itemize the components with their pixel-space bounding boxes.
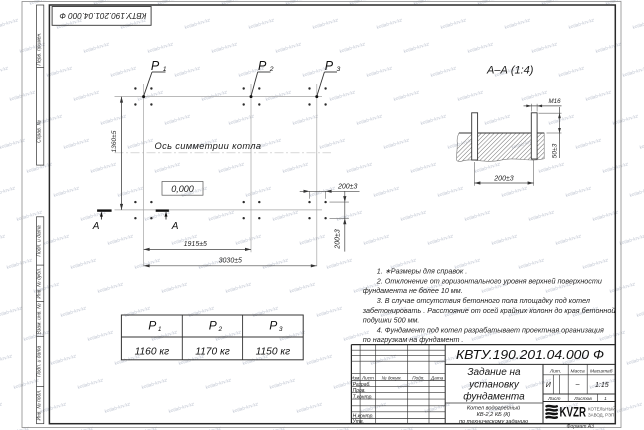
svg-text:2. Отклонение от горизонтал: 2. Отклонение от горизонтального уровня … bbox=[376, 276, 602, 285]
svg-text:1915±5: 1915±5 bbox=[184, 241, 207, 248]
svg-text:Изм.: Изм. bbox=[351, 376, 361, 381]
svg-text:Утв.: Утв. bbox=[353, 419, 364, 425]
svg-text:А–А (1:4): А–А (1:4) bbox=[486, 64, 534, 76]
svg-text:3030±5: 3030±5 bbox=[219, 257, 242, 264]
svg-text:–: – bbox=[575, 381, 580, 388]
svg-text:3: 3 bbox=[337, 66, 341, 73]
svg-text:Лит.: Лит. bbox=[549, 368, 561, 374]
svg-text:Подп.: Подп. bbox=[412, 376, 424, 381]
svg-text:2: 2 bbox=[269, 66, 274, 73]
svg-text:КВТУ.190.201.04.000 Ф: КВТУ.190.201.04.000 Ф bbox=[59, 11, 146, 20]
svg-text:1: 1 bbox=[604, 396, 607, 402]
svg-text:КОТЕЛЬНЫЙ: КОТЕЛЬНЫЙ bbox=[588, 406, 616, 411]
svg-text:P: P bbox=[325, 59, 334, 73]
svg-text:Листов: Листов bbox=[573, 396, 592, 402]
svg-text:подушки 500 мм.: подушки 500 мм. bbox=[363, 316, 420, 325]
svg-text:P: P bbox=[148, 319, 156, 333]
svg-text:1150 кг: 1150 кг bbox=[256, 346, 291, 357]
svg-text:по техническому заданию: по техническому заданию bbox=[459, 419, 529, 425]
svg-text:200±3: 200±3 bbox=[335, 229, 342, 250]
svg-text:установку: установку bbox=[468, 379, 520, 390]
svg-text:фундамента не более 10 мм.: фундамента не более 10 мм. bbox=[363, 286, 463, 295]
svg-text:Пров.: Пров. bbox=[353, 388, 366, 394]
svg-text:Инв. № подл.: Инв. № подл. bbox=[36, 389, 42, 420]
svg-text:P: P bbox=[269, 319, 277, 333]
svg-text:Лист: Лист bbox=[361, 376, 374, 381]
svg-text:0,000: 0,000 bbox=[171, 184, 194, 194]
svg-text:Масштаб: Масштаб bbox=[590, 368, 613, 374]
svg-text:№ докум.: № докум. bbox=[382, 376, 402, 381]
svg-text:3. В случае отсутствия бет: 3. В случае отсутствия бетонного пола пл… bbox=[377, 296, 590, 305]
svg-text:А: А bbox=[171, 221, 179, 232]
svg-text:1170 кг: 1170 кг bbox=[195, 346, 230, 357]
svg-text:200±3: 200±3 bbox=[337, 184, 358, 191]
svg-text:Взам. инв. №: Взам. инв. № bbox=[36, 303, 42, 335]
svg-text:Т.контр.: Т.контр. bbox=[353, 394, 373, 400]
svg-text:Котел водогрейный: Котел водогрейный bbox=[467, 404, 520, 411]
svg-text:Ось симметрии котла: Ось симметрии котла bbox=[155, 141, 262, 151]
svg-text:2: 2 bbox=[218, 326, 223, 333]
svg-text:Подп. и дата: Подп. и дата bbox=[36, 225, 42, 257]
svg-text:Масса: Масса bbox=[571, 368, 586, 374]
svg-text:P: P bbox=[209, 319, 217, 333]
svg-text:Лист: Лист bbox=[547, 396, 560, 402]
svg-text:ЗАВОД, РЭП: ЗАВОД, РЭП bbox=[588, 413, 614, 418]
svg-text:Подп. и дата: Подп. и дата bbox=[36, 346, 42, 378]
svg-text:КВТУ.190.201.04.000 Ф: КВТУ.190.201.04.000 Ф bbox=[456, 347, 604, 362]
svg-text:1160 кг: 1160 кг bbox=[135, 346, 170, 357]
svg-text:М16: М16 bbox=[549, 98, 562, 105]
svg-text:А: А bbox=[92, 221, 100, 232]
svg-text:Перв. примен.: Перв. примен. bbox=[36, 32, 42, 65]
svg-text:КВ-2,2 КБ (К): КВ-2,2 КБ (К) bbox=[477, 412, 511, 418]
svg-text:Инв. № дубл.: Инв. № дубл. bbox=[36, 268, 42, 299]
svg-text:3: 3 bbox=[279, 326, 283, 333]
svg-text:200±3: 200±3 bbox=[493, 176, 514, 183]
svg-text:Дата: Дата bbox=[430, 376, 444, 381]
svg-text:1:15: 1:15 bbox=[595, 382, 609, 389]
svg-text:забетонировать . Расстояние: забетонировать . Расстояние от осей край… bbox=[362, 306, 616, 315]
svg-text:KVZR: KVZR bbox=[560, 404, 587, 419]
svg-text:1: 1 bbox=[158, 326, 162, 333]
svg-text:50±3: 50±3 bbox=[552, 143, 559, 158]
svg-text:1. ∗Размеры для справок .: 1. ∗Размеры для справок . bbox=[377, 266, 468, 275]
svg-text:Задание на: Задание на bbox=[467, 367, 521, 378]
svg-text:Формат А3: Формат А3 bbox=[567, 424, 595, 430]
svg-text:4. Фундамент под котел раз: 4. Фундамент под котел разрабатывает про… bbox=[377, 325, 604, 334]
svg-text:1: 1 bbox=[163, 66, 167, 73]
svg-text:по нагрузкам на фундамент .: по нагрузкам на фундамент . bbox=[363, 335, 464, 344]
svg-text:Справ. №: Справ. № bbox=[36, 120, 42, 143]
svg-text:1360±5: 1360±5 bbox=[111, 130, 118, 152]
svg-text:фундамента: фундамента bbox=[463, 391, 525, 403]
svg-text:P: P bbox=[258, 59, 267, 73]
svg-text:P: P bbox=[151, 59, 160, 73]
